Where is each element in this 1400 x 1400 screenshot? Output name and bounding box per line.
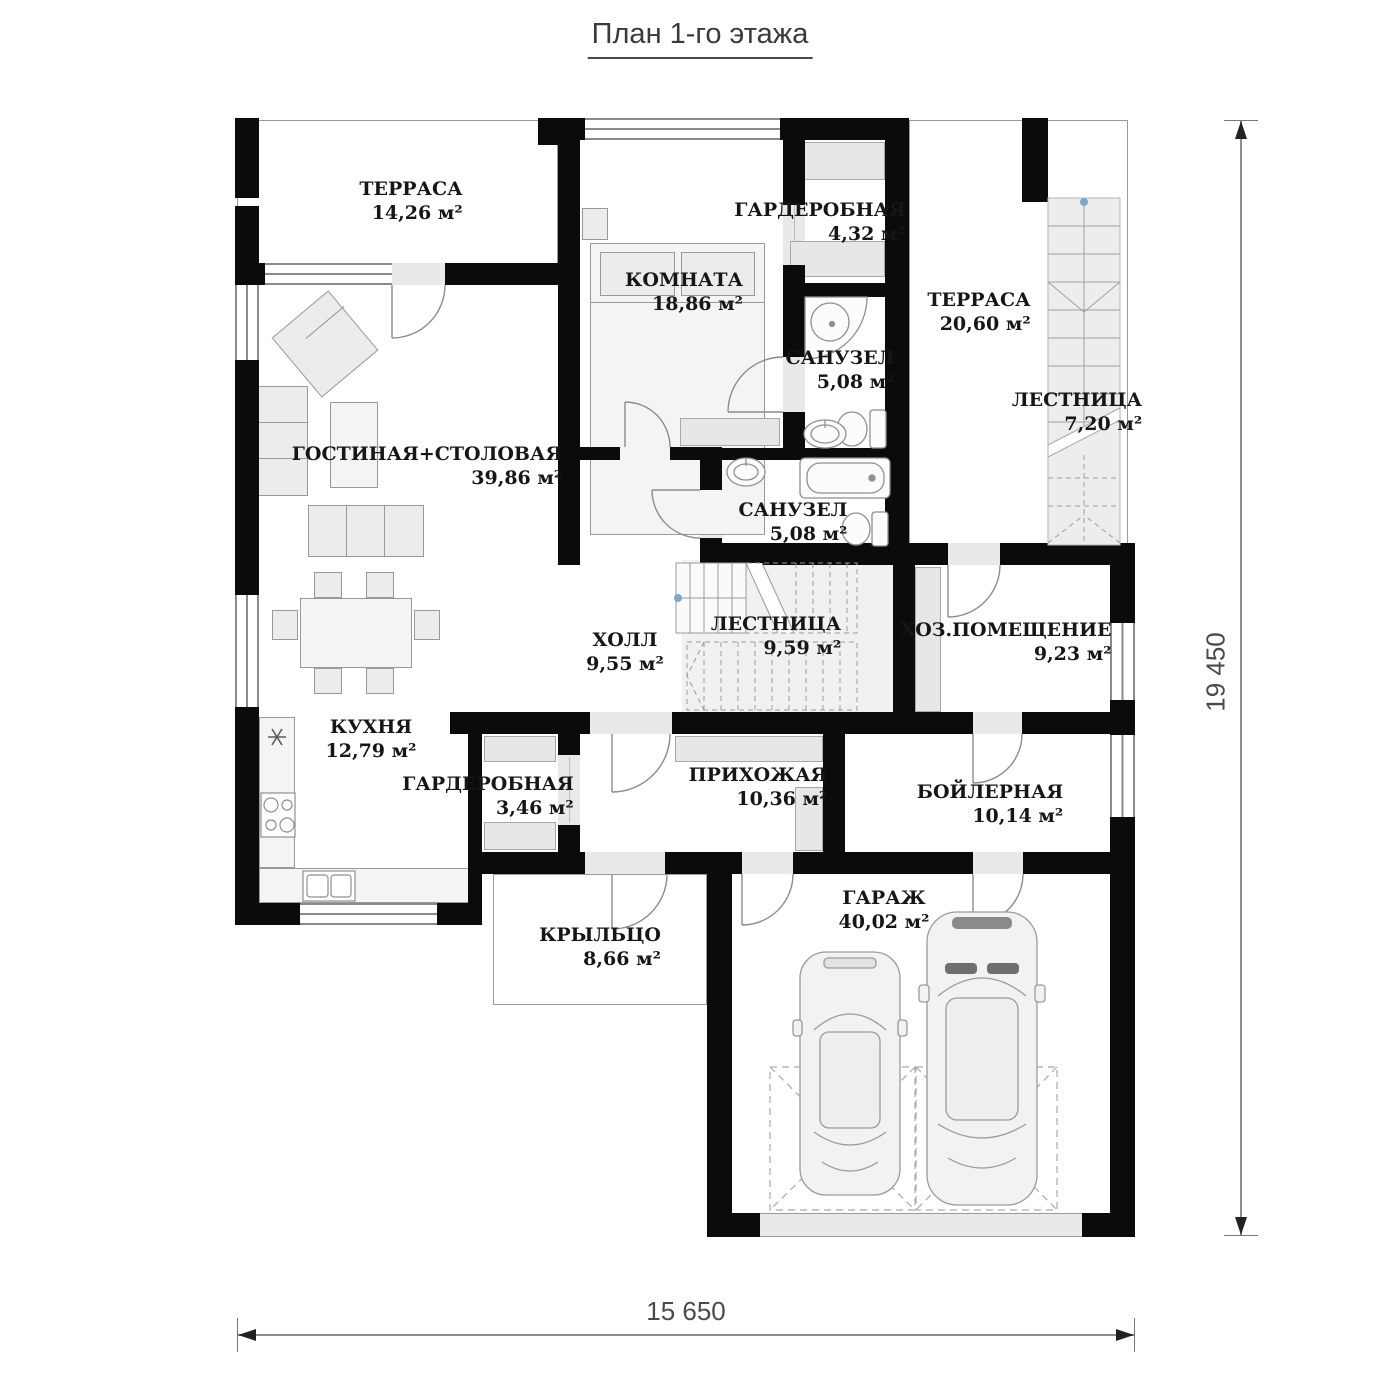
sofa-line (259, 422, 307, 423)
sofa-line (346, 506, 347, 556)
wall (482, 852, 585, 874)
room-name: ГОСТИНАЯ+СТОЛОВАЯ (292, 443, 562, 465)
room-name: САНУЗЕЛ (786, 347, 895, 369)
room-label-stairs-center: ЛЕСТНИЦА 9,59 м² (711, 612, 841, 660)
room-area: 10,36 м² (689, 787, 828, 811)
room-name: ГАРДЕРОБНАЯ (402, 773, 574, 795)
dimension-tick (1134, 1318, 1135, 1352)
window (235, 285, 259, 360)
floor-plan: ТЕРРАСА 14,26 м² КОМНАТА 18,86 м² ГАРДЕР… (0, 0, 1400, 1400)
dimension-arrow-down (1235, 1217, 1247, 1235)
bathtub (800, 458, 890, 498)
wall (1000, 543, 1135, 565)
room-area: 5,08 м² (739, 522, 848, 546)
window (300, 903, 437, 925)
wall (700, 448, 722, 490)
room-area: 40,02 м² (839, 910, 930, 934)
wall (722, 448, 909, 460)
room-label-terrace-right: ТЕРРАСА 20,60 м² (927, 288, 1030, 336)
wall (235, 118, 259, 198)
wardrobe-shelf (484, 736, 556, 762)
room-label-kitchen: КУХНЯ 12,79 м² (326, 715, 417, 763)
armchair (272, 290, 379, 397)
room-label-porch: КРЫЛЬЦО 8,66 м² (539, 923, 661, 971)
wall (235, 263, 265, 285)
room-area: 10,14 м² (917, 804, 1064, 828)
wall (1110, 565, 1135, 623)
room-label-utility: ХОЗ.ПОМЕЩЕНИЕ 9,23 м² (900, 618, 1111, 666)
wall (558, 118, 585, 140)
room-label-stairs-right: ЛЕСТНИЦА 7,20 м² (1012, 388, 1142, 436)
room-name: ХОЗ.ПОМЕЩЕНИЕ (900, 619, 1111, 641)
chair (314, 668, 342, 694)
dimension-line-bottom (237, 1334, 1135, 1336)
dresser (680, 418, 780, 446)
room-area: 5,08 м² (786, 370, 895, 394)
wall (1022, 118, 1048, 202)
threshold (973, 712, 1022, 734)
room-area: 9,23 м² (900, 642, 1111, 666)
room-name: ТЕРРАСА (359, 178, 462, 200)
room-area: 39,86 м² (292, 466, 562, 490)
wall (235, 707, 259, 903)
car-small (793, 952, 907, 1195)
wall (1110, 817, 1135, 1213)
threshold (742, 852, 793, 874)
sink (804, 420, 846, 448)
room-area: 3,46 м² (402, 796, 574, 820)
threshold (973, 852, 1023, 874)
room-name: САНУЗЕЛ (739, 499, 848, 521)
room-name: КУХНЯ (330, 716, 412, 738)
room-name: ПРИХОЖАЯ (689, 764, 828, 786)
room-label-bedroom: КОМНАТА 18,86 м² (625, 268, 743, 316)
dimension-width-label: 15 650 (646, 1296, 726, 1327)
wall (468, 734, 482, 925)
wall (450, 712, 590, 734)
toilet-bowl (837, 412, 867, 446)
dimension-arrow-left (238, 1329, 256, 1341)
room-label-bath-bottom: САНУЗЕЛ 5,08 м² (739, 498, 848, 546)
room-label-terrace-top-left: ТЕРРАСА 14,26 м² (359, 177, 462, 225)
room-label-boiler: БОЙЛЕРНАЯ 10,14 м² (917, 780, 1064, 828)
window (1110, 623, 1135, 700)
wall (672, 712, 893, 734)
wall (783, 140, 805, 205)
room-name: ТЕРРАСА (927, 289, 1030, 311)
nightstand (582, 208, 608, 240)
kitchen-counter-bottom (259, 868, 482, 903)
garage-gate-threshold (760, 1213, 1082, 1237)
stair-start-marker (674, 594, 682, 602)
wall (558, 734, 580, 755)
wall (793, 852, 973, 874)
room-name: КОМНАТА (625, 269, 743, 291)
wall (1082, 1213, 1135, 1237)
wall (558, 447, 620, 460)
window (585, 118, 780, 140)
room-name: ГАРДЕРОБНАЯ (734, 199, 906, 221)
threshold (948, 543, 1000, 565)
room-name: ГАРАЖ (842, 887, 925, 909)
wall (700, 543, 948, 565)
room-label-bath-top: САНУЗЕЛ 5,08 м² (786, 346, 895, 394)
dimension-line-right (1240, 120, 1242, 1236)
room-area: 9,59 м² (711, 636, 841, 660)
page-title: План 1-го этажа (588, 18, 813, 59)
wall (780, 118, 909, 140)
dimension-arrow-up (1235, 121, 1247, 139)
wall (235, 206, 259, 263)
parking-markings (770, 1067, 1057, 1210)
chair (314, 572, 342, 598)
threshold (590, 712, 672, 734)
room-label-entry: ПРИХОЖАЯ 10,36 м² (689, 763, 828, 811)
room-name: БОЙЛЕРНАЯ (917, 781, 1064, 803)
room-name: ЛЕСТНИЦА (711, 613, 841, 635)
dining-table (300, 598, 412, 668)
room-label-living: ГОСТИНАЯ+СТОЛОВАЯ 39,86 м² (292, 442, 562, 490)
room-name: ЛЕСТНИЦА (1012, 389, 1142, 411)
sofa-three-seat (308, 505, 424, 557)
wall (665, 852, 742, 874)
wall (783, 283, 909, 297)
wall (235, 360, 259, 595)
room-name: КРЫЛЬЦО (539, 924, 661, 946)
toilet-tank (870, 410, 886, 448)
room-label-wardrobe-top: ГАРДЕРОБНАЯ 4,32 м² (734, 198, 906, 246)
wall (783, 412, 805, 448)
car-large (919, 912, 1045, 1205)
room-label-garage: ГАРАЖ 40,02 м² (839, 886, 930, 934)
wall (558, 140, 580, 565)
wall (538, 118, 560, 145)
window (235, 595, 259, 707)
room-area: 12,79 м² (326, 739, 417, 763)
wall (893, 712, 973, 734)
dimension-arrow-right (1116, 1329, 1134, 1341)
wall (1110, 700, 1135, 735)
wall (437, 903, 482, 925)
wall (445, 263, 560, 285)
wall (235, 903, 300, 925)
wall (707, 874, 732, 1213)
room-area: 4,32 м² (734, 222, 906, 246)
dimension-tick (1224, 1235, 1258, 1236)
room-label-wardrobe-bottom: ГАРДЕРОБНАЯ 3,46 м² (402, 772, 574, 820)
window (265, 263, 392, 285)
room-area: 20,60 м² (927, 312, 1030, 336)
room-area: 18,86 м² (625, 292, 743, 316)
sofa-line (384, 506, 385, 556)
threshold (585, 852, 665, 874)
wall (707, 1213, 760, 1237)
room-area: 7,20 м² (1012, 412, 1142, 436)
room-label-hall: ХОЛЛ 9,55 м² (586, 628, 664, 676)
threshold (392, 263, 445, 285)
room-area: 9,55 м² (586, 652, 664, 676)
chair (272, 610, 298, 640)
chair (366, 572, 394, 598)
kitchen-counter-left (259, 717, 295, 868)
room-area: 8,66 м² (539, 947, 661, 971)
chair (366, 668, 394, 694)
window (1110, 735, 1135, 817)
entry-wardrobe (675, 736, 823, 762)
dimension-height-label: 19 450 (1201, 632, 1232, 712)
room-name: ХОЛЛ (593, 629, 658, 651)
wardrobe-shelf (484, 822, 556, 850)
chair (414, 610, 440, 640)
room-area: 14,26 м² (359, 201, 462, 225)
wall (783, 265, 805, 357)
